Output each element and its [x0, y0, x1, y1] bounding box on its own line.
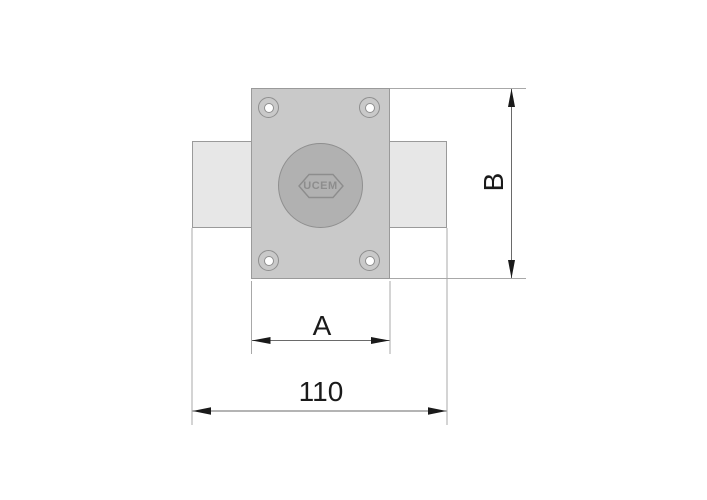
- screw-hole-center: [264, 256, 274, 266]
- arrowhead-110-left: [193, 407, 212, 414]
- arrowhead-b-up: [508, 89, 515, 108]
- screw-hole-top-right: [359, 97, 380, 118]
- screw-hole-center: [365, 256, 375, 266]
- technical-drawing-canvas: UCEM A B 110: [0, 0, 707, 500]
- dimension-label-plate-width: A: [313, 312, 332, 340]
- brand-logo: UCEM: [297, 171, 345, 201]
- screw-hole-center: [264, 103, 274, 113]
- arrowhead-110-right: [428, 407, 447, 414]
- brand-logo-text: UCEM: [297, 171, 345, 201]
- arrowhead-a-right: [371, 337, 390, 344]
- screw-hole-bottom-left: [258, 250, 279, 271]
- screw-hole-bottom-right: [359, 250, 380, 271]
- dimension-label-overall-width: 110: [299, 378, 344, 406]
- arrowhead-a-left: [252, 337, 271, 344]
- arrowhead-b-down: [508, 260, 515, 279]
- screw-hole-center: [365, 103, 375, 113]
- dimension-label-plate-height: B: [480, 173, 508, 192]
- cylinder-knob: UCEM: [278, 143, 363, 228]
- screw-hole-top-left: [258, 97, 279, 118]
